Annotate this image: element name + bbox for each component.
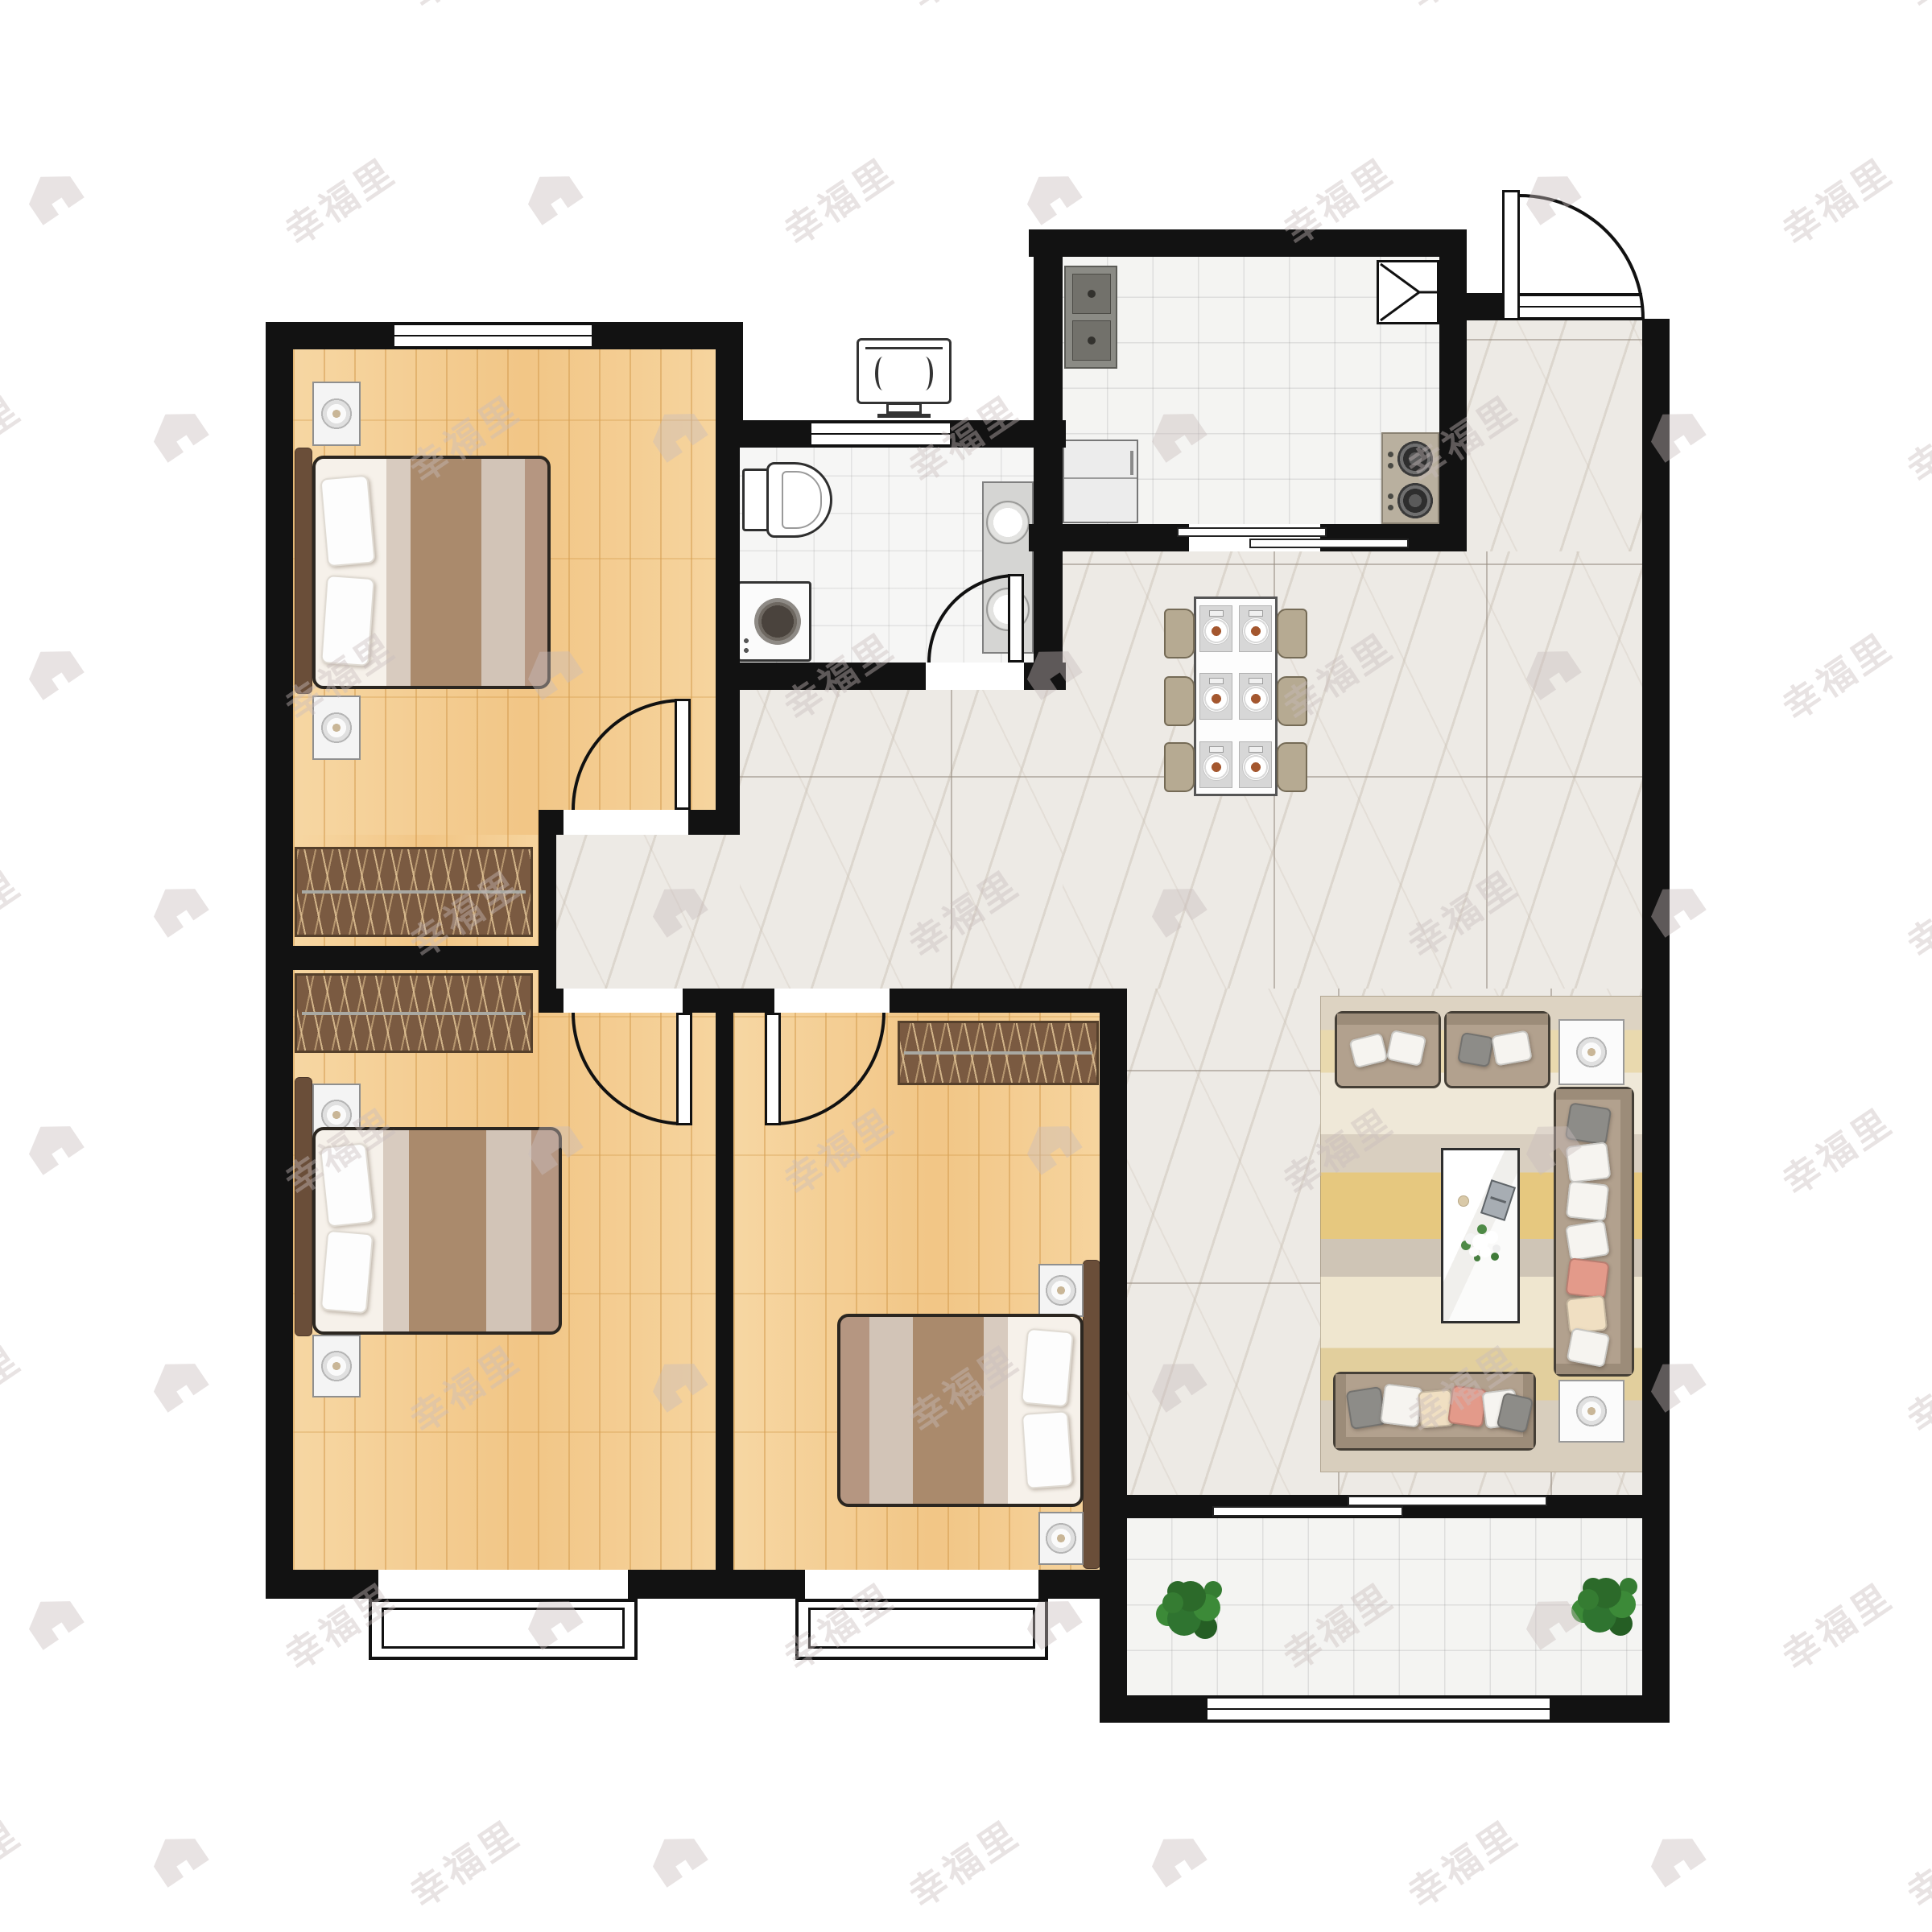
bedroom3-bay-window [795,1599,1048,1660]
house-icon [145,400,212,465]
ac-top-bar [865,347,943,349]
house-icon [145,875,212,940]
bedroom2-door-leaf [676,1013,692,1125]
bedroom2-doorway-gap [563,989,683,1013]
cutlery-icon [1249,746,1263,753]
bedroom1-nightstand-bottom [312,696,361,760]
kitchen-slider-panel-left [1177,527,1327,537]
wardrobe-rail [302,890,526,894]
wall-hallway-left [539,810,556,1013]
pillow-icon [1447,1385,1488,1428]
three-seat-sofa-bottom [1333,1372,1536,1451]
toilet-seat [782,471,822,529]
bedroom1-headboard [295,448,312,694]
sofa-back [1335,1437,1534,1448]
gas-stove-icon [1381,432,1439,524]
bedroom2-double-bed [312,1127,562,1335]
ac-outdoor-unit-icon [857,338,952,404]
potted-plant-icon [1143,1571,1216,1641]
bedroom2-window-gap [378,1570,628,1599]
house-icon [1143,1825,1210,1890]
watermark-text: 幸福里 [0,1806,31,1918]
plate-icon [1242,685,1269,712]
bedroom1-doorway-gap [563,810,688,835]
coffee-table [1441,1148,1520,1323]
table-lamp-icon [319,1348,354,1384]
pillow-icon [320,1230,374,1315]
place-setting [1199,605,1232,652]
bay-window-inner-frame [382,1608,625,1649]
wall-kitchen-bathroom-divider [1034,229,1063,690]
watermark-text: 幸福里 [1771,1568,1903,1681]
side-table-top-right [1558,1019,1624,1085]
pillow-icon [1565,1102,1612,1146]
bedroom3-nightstand-top [1038,1264,1084,1317]
corridor-floor [740,690,1063,989]
bedroom3-doorway-gap [774,989,890,1013]
watermark-text: 幸福里 [0,1331,31,1443]
balcony-slider-panel-left [1212,1506,1403,1517]
watermark-text: 幸福里 [274,143,406,256]
watermark-text: 幸福里 [898,1806,1030,1918]
balcony-window [1207,1695,1550,1723]
wardrobe-rail [904,1051,1092,1055]
ac-bracket-left [875,357,888,390]
place-setting [1199,673,1232,720]
pillow-icon [1566,1181,1610,1222]
bedroom3-nightstand-bottom [1038,1512,1084,1565]
floor-lamp-icon [1574,1393,1609,1429]
watermark-text: 幸福里 [1771,618,1903,731]
plate-icon [1242,617,1269,645]
toilet-bowl [766,462,832,538]
washing-machine-icon [737,581,811,662]
pillow-icon [1565,1257,1609,1299]
watermark-text: 幸福里 [0,856,31,968]
watermark-text: 幸福里 [1896,0,1932,19]
cutlery-icon [1209,678,1224,684]
fridge-door-split [1064,477,1137,479]
stove-burner [1397,482,1434,519]
wall-bedroom3-right [1100,989,1127,1723]
dining-floor [1063,551,1642,989]
pillow-icon [320,575,375,667]
long-sofa-right [1554,1087,1634,1377]
place-setting [1239,673,1272,720]
watermark-text: 幸福里 [1896,1806,1932,1918]
kitchen-slider-panel-right [1249,539,1409,548]
washer-buttons [743,637,749,654]
wall-nook-bedroom2-divider [266,946,555,970]
bathroom-door-leaf [1008,574,1024,663]
coaster-icon [1458,1195,1469,1207]
house-icon [20,638,87,703]
house-icon [519,163,586,228]
stove-knob [1388,505,1393,510]
kitchen-sink-icon [1064,266,1117,369]
floor-plan-canvas: 幸福里幸福里幸福里幸福里幸福里幸福里幸福里幸福里幸福里幸福里幸福里幸福里幸福里幸… [0,0,1932,1932]
dining-chair [1277,742,1307,792]
bedroom1-double-bed [312,456,551,689]
dining-chair [1164,609,1195,658]
sofa-armrest [1335,1374,1346,1448]
entry-door-arc [1520,194,1645,319]
stove-knob [1388,493,1393,499]
pillow-icon [1021,1328,1074,1408]
sink-basin [1072,320,1111,361]
pillow-icon [1457,1032,1494,1067]
cutlery-icon [1249,610,1263,617]
ac-unit-base [877,414,931,418]
stove-knob [1388,452,1393,457]
ac-bracket-right [920,357,933,390]
corner-shelf-lines [1379,262,1437,322]
house-icon [145,1350,212,1415]
plate-icon [1242,753,1269,781]
bedroom1-nightstand-top [312,382,361,446]
pillow-icon [320,475,375,568]
wall-kitchen-right [1439,229,1467,551]
sofa-armrest [1556,1089,1632,1100]
foyer-floor [1467,320,1642,551]
wall-kitchen-top [1029,229,1467,257]
pillow-icon [1566,1295,1608,1335]
hallway-floor [556,835,740,989]
ac-unit-stand [886,402,922,414]
watermark-text: 幸福里 [398,1806,530,1918]
cutlery-icon [1249,678,1263,684]
floor-lamp-icon [1574,1034,1609,1070]
bedroom2-wardrobe [295,973,533,1053]
pillow-icon [1566,1327,1610,1368]
vanity-sink-icon [986,501,1030,544]
bedroom3-window-gap [805,1570,1038,1599]
pillow-icon [1380,1383,1423,1427]
potted-plant-icon [1558,1568,1631,1637]
table-lamp-icon [1043,1521,1079,1556]
book-icon [1480,1179,1516,1221]
bedroom1-wardrobe [295,847,533,937]
bedroom3-double-bed [837,1314,1084,1507]
watermark-text: 幸福里 [0,381,31,493]
bathroom-window [811,420,950,448]
dining-chair [1277,676,1307,726]
house-icon [1642,1825,1709,1890]
stove-knob [1388,463,1393,469]
plate-icon [1203,685,1230,712]
pillow-icon [1022,1410,1073,1489]
watermark-text: 幸福里 [398,0,530,19]
wall-bedroom2-bedroom3-divider [716,1013,733,1570]
flower-vase-icon [1472,1234,1488,1250]
bay-window-inner-frame [808,1608,1035,1649]
wall-bathroom-left [716,448,740,835]
watermark-text: 幸福里 [1397,0,1529,19]
pillow-icon [1565,1220,1610,1261]
pillow-icon [1491,1030,1533,1066]
watermark-text: 幸福里 [773,143,905,256]
bedroom2-bay-window [369,1599,638,1660]
plant-leaves [1578,1589,1599,1610]
cutlery-icon [1209,746,1224,753]
plate-icon [1203,753,1230,781]
table-lamp-icon [319,710,354,745]
house-icon [20,1587,87,1653]
dining-chair [1277,609,1307,658]
plate-icon [1203,617,1230,645]
fridge-handle [1130,451,1133,475]
cutlery-icon [1209,610,1224,617]
watermark-text: 幸福里 [0,0,31,19]
loveseat-right [1444,1011,1550,1088]
bedroom1-door-leaf [675,699,691,810]
table-lamp-icon [1043,1273,1079,1308]
house-icon [20,1113,87,1178]
watermark-text: 幸福里 [1771,1093,1903,1206]
watermark-text: 幸福里 [1896,1331,1932,1443]
toilet-icon [742,462,832,538]
side-table-bottom-right [1558,1380,1624,1443]
bedroom2-headboard [295,1077,312,1336]
stove-burner [1397,440,1434,477]
bathroom-doorway-gap [926,663,1024,690]
bedroom1-window [394,322,592,349]
dining-chair [1164,742,1195,792]
loveseat-left [1335,1011,1441,1088]
watermark-text: 幸福里 [1896,856,1932,968]
wardrobe-rail [302,1012,526,1015]
watermark-text: 幸福里 [1397,1806,1529,1918]
pillow-icon [1565,1141,1611,1183]
watermark-text: 幸福里 [1896,381,1932,493]
watermark-text: 幸福里 [898,0,1030,19]
sofa-back [1337,1013,1439,1025]
bedroom3-wardrobe [898,1021,1099,1085]
refrigerator-icon [1063,440,1138,523]
table-lamp-icon [319,396,354,431]
pillow-icon [1346,1386,1387,1430]
sink-basin [1072,274,1111,314]
house-icon [145,1825,212,1890]
washer-drum [754,598,801,645]
bedroom3-headboard [1083,1260,1100,1569]
place-setting [1199,741,1232,788]
kitchen-corner-shelf [1377,260,1439,324]
bedroom2-nightstand-bottom [312,1335,361,1397]
bedroom3-door-leaf [765,1013,781,1125]
pillow-icon [1348,1032,1388,1068]
place-setting [1239,741,1272,788]
house-icon [20,163,87,228]
pillow-icon [320,1142,374,1228]
pillow-icon [1386,1030,1427,1067]
entry-door-leaf [1502,190,1520,320]
watermark-text: 幸福里 [1771,143,1903,256]
plant-leaves [1162,1592,1183,1613]
sofa-back [1620,1089,1632,1374]
house-icon [1018,163,1085,228]
dining-chair [1164,676,1195,726]
place-setting [1239,605,1272,652]
sofa-back [1447,1013,1548,1025]
house-icon [644,1825,711,1890]
balcony-slider-panel-right [1348,1496,1547,1506]
